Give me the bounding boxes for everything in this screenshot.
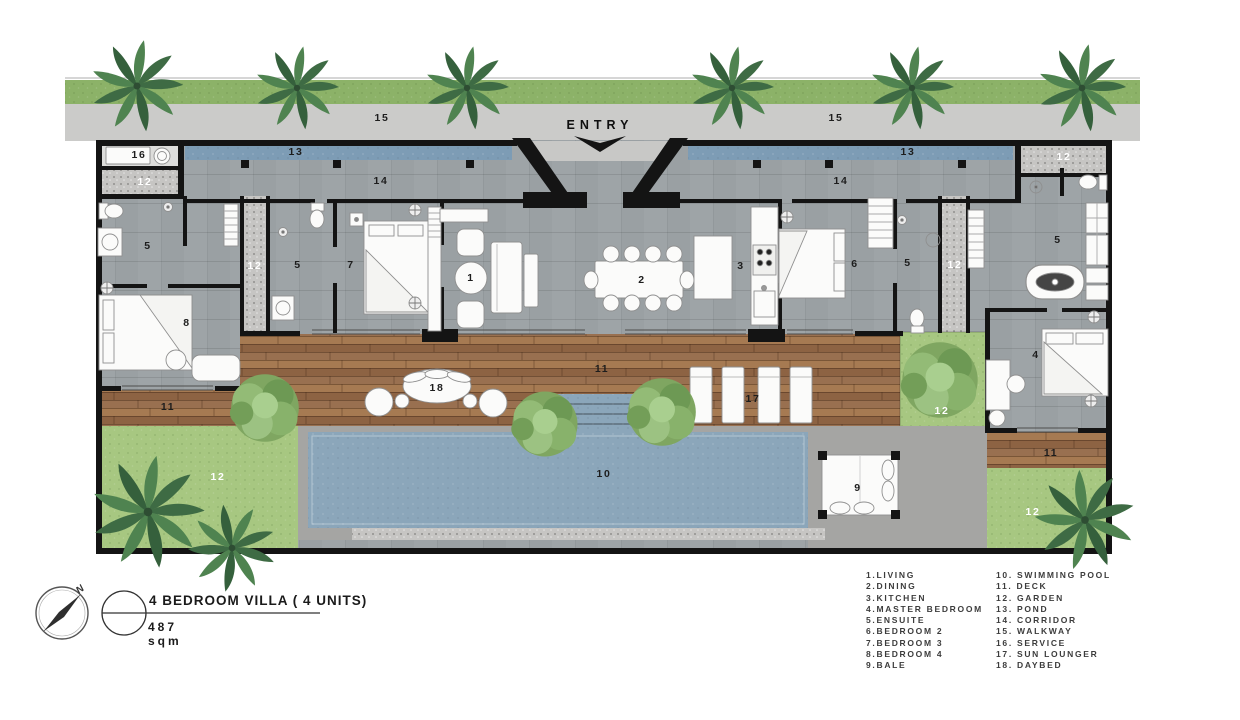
room-label-garden: 12: [1057, 152, 1072, 163]
room-label-garden: 12: [935, 406, 950, 417]
room-label-garden: 12: [948, 260, 963, 271]
wardrobe: [968, 210, 984, 268]
pouf: [479, 389, 507, 417]
legend-item: 8.BEDROOM 4: [866, 649, 983, 660]
legend-column-2: 10. SWIMMING POOL11. DECK12. GARDEN13. P…: [996, 570, 1111, 672]
room-label-swimming-pool: 10: [597, 469, 612, 480]
console: [440, 209, 488, 222]
legend-column-1: 1.LIVING2.DINING3.KITCHEN4.MASTER BEDROO…: [866, 570, 983, 672]
legend-item: 12. GARDEN: [996, 593, 1111, 604]
chaise: [192, 355, 240, 381]
basin: [154, 148, 170, 164]
legend-item: 1.LIVING: [866, 570, 983, 581]
desk: [986, 360, 1010, 410]
legend-item: 11. DECK: [996, 581, 1111, 592]
wardrobe: [428, 207, 441, 331]
legend-item: 13. POND: [996, 604, 1111, 615]
room-label-service: 16: [132, 150, 147, 161]
legend-item: 17. SUN LOUNGER: [996, 649, 1111, 660]
room-label-deck: 11: [595, 364, 609, 375]
room-label-pond: 13: [901, 147, 916, 158]
armchair: [457, 301, 484, 328]
chair: [1007, 375, 1025, 393]
legend-item: 5.ENSUITE: [866, 615, 983, 626]
room-label-dining: 2: [638, 275, 645, 286]
room-label-walkway: 15: [829, 113, 844, 124]
wardrobe: [868, 198, 893, 248]
room-label-ensuite: 5: [144, 241, 151, 252]
legend-item: 16. SERVICE: [996, 638, 1111, 649]
floor-plan-canvas: 1515161313141412121212121212555571236841…: [0, 0, 1240, 720]
toilet: [910, 309, 924, 327]
room-label-bedroom-4: 8: [183, 318, 190, 329]
room-label-ensuite: 5: [1054, 235, 1061, 246]
toilet: [310, 210, 324, 228]
legend-item: 14. CORRIDOR: [996, 615, 1111, 626]
legend-item: 15. WALKWAY: [996, 626, 1111, 637]
coffee-table: [524, 254, 538, 307]
room-label-bedroom-3: 7: [347, 260, 354, 271]
legend-item: 3.KITCHEN: [866, 593, 983, 604]
kitchen-island: [694, 236, 732, 299]
room-label-bale: 9: [854, 483, 861, 494]
legend-item: 4.MASTER BEDROOM: [866, 604, 983, 615]
room-label-sun-lounger: 17: [746, 394, 761, 405]
compass-icon: N: [31, 582, 93, 646]
sofa: [491, 242, 522, 313]
room-label-deck: 11: [1044, 448, 1058, 459]
room-label-bedroom-2: 6: [851, 259, 858, 270]
legend-item: 6.BEDROOM 2: [866, 626, 983, 637]
villa-area: 487 sqm: [148, 620, 182, 648]
room-label-daybed: 18: [430, 383, 445, 394]
sun-lounger: [790, 367, 812, 423]
sun-lounger: [722, 367, 744, 423]
room-label-corridor: 14: [374, 176, 389, 187]
legend-item: 7.BEDROOM 3: [866, 638, 983, 649]
armchair: [457, 229, 484, 256]
room-label-garden: 12: [248, 261, 263, 272]
room-label-master-bedroom: 4: [1032, 350, 1039, 361]
sun-lounger: [758, 367, 780, 423]
legend-item: 2.DINING: [866, 581, 983, 592]
villa-title: 4 BEDROOM VILLA ( 4 UNITS): [149, 593, 367, 608]
legend-item: 9.BALE: [866, 660, 983, 671]
entry-label: ENTRY: [567, 118, 634, 132]
room-label-living: 1: [467, 273, 474, 284]
room-label-kitchen: 3: [737, 261, 744, 272]
room-label-deck: 11: [161, 402, 175, 413]
pouf: [365, 388, 393, 416]
room-label-corridor: 14: [834, 176, 849, 187]
room-label-walkway: 15: [375, 113, 390, 124]
toilet: [105, 204, 123, 218]
room-label-pond: 13: [289, 147, 304, 158]
legend-item: 10. SWIMMING POOL: [996, 570, 1111, 581]
room-label-garden: 12: [211, 472, 226, 483]
room-label-ensuite: 5: [294, 260, 301, 271]
room-label-ensuite: 5: [904, 258, 911, 269]
room-label-garden: 12: [1026, 507, 1041, 518]
svg-text:N: N: [74, 583, 87, 597]
toilet: [1079, 175, 1097, 189]
room-label-garden: 12: [138, 177, 153, 188]
legend-item: 18. DAYBED: [996, 660, 1111, 671]
